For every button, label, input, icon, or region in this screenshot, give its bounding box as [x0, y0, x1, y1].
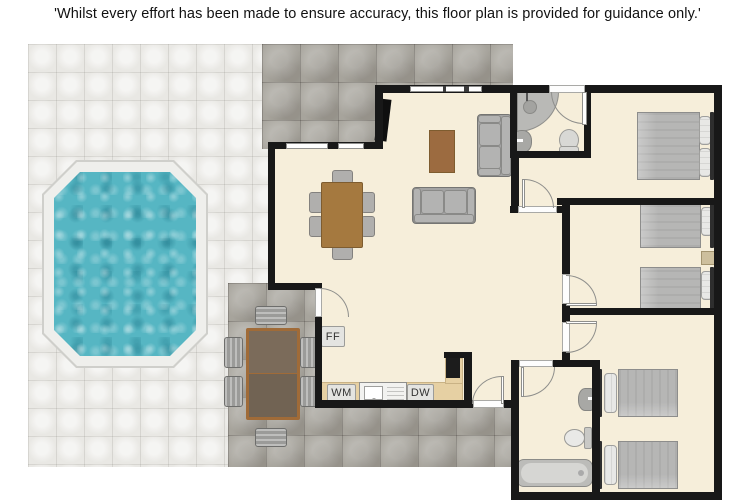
wall: [315, 400, 473, 408]
door-leaf: [582, 92, 587, 125]
floor-plan: 'Whilst every effort has been made to en…: [0, 0, 755, 504]
sofa-cushion: [421, 190, 444, 214]
dining-chair: [361, 192, 375, 213]
sink-drainer: [387, 386, 404, 400]
toilet-tank: [584, 427, 592, 449]
single-bed: [618, 441, 678, 489]
door-opening: [519, 360, 553, 367]
window: [410, 86, 482, 92]
pillow: [604, 445, 617, 485]
pillow: [604, 373, 617, 413]
window: [286, 143, 328, 149]
toilet: [564, 429, 585, 447]
wall: [315, 316, 322, 408]
sofa-back: [414, 214, 474, 223]
outdoor-chair: [255, 428, 287, 447]
window-mullion: [443, 86, 446, 92]
bathtub-drain: [578, 470, 584, 476]
sofa-arm: [478, 168, 501, 176]
fridge-freezer: FF: [321, 326, 345, 347]
wall: [714, 85, 722, 500]
dining-chair: [361, 216, 375, 237]
shower-head-icon: [526, 93, 528, 101]
window: [338, 143, 364, 149]
outdoor-chair: [224, 376, 243, 407]
wall: [592, 360, 600, 500]
wall: [268, 283, 322, 290]
outdoor-table-top: [249, 374, 297, 417]
hob: [446, 356, 460, 378]
shower-drain: [523, 100, 537, 114]
wall: [557, 198, 722, 205]
dining-table: [321, 182, 363, 248]
disclaimer-text: 'Whilst every effort has been made to en…: [0, 6, 755, 22]
wall: [375, 85, 383, 149]
swimming-pool: [54, 172, 196, 356]
outdoor-table-top: [249, 331, 297, 373]
single-bed: [640, 267, 701, 313]
wall: [268, 142, 275, 290]
window-mullion: [464, 86, 469, 92]
wall: [464, 352, 472, 408]
outdoor-chair: [255, 306, 287, 325]
wall: [511, 492, 722, 500]
wall: [511, 362, 519, 500]
bedside-table: [701, 251, 715, 265]
sofa: [477, 114, 512, 177]
dining-chair: [332, 246, 353, 260]
sofa-cushion: [444, 190, 467, 214]
wall: [510, 151, 591, 158]
sofa: [412, 187, 476, 224]
outdoor-chair: [224, 337, 243, 368]
double-bed: [637, 112, 700, 180]
coffee-table: [429, 130, 455, 173]
wall: [562, 308, 722, 315]
sofa-cushion: [479, 146, 501, 169]
sofa-arm: [478, 115, 501, 123]
sofa-cushion: [479, 123, 501, 146]
wall: [511, 158, 519, 213]
single-bed: [640, 203, 701, 248]
single-bed: [618, 369, 678, 417]
wall: [510, 88, 517, 158]
sink-tap: [517, 139, 523, 142]
